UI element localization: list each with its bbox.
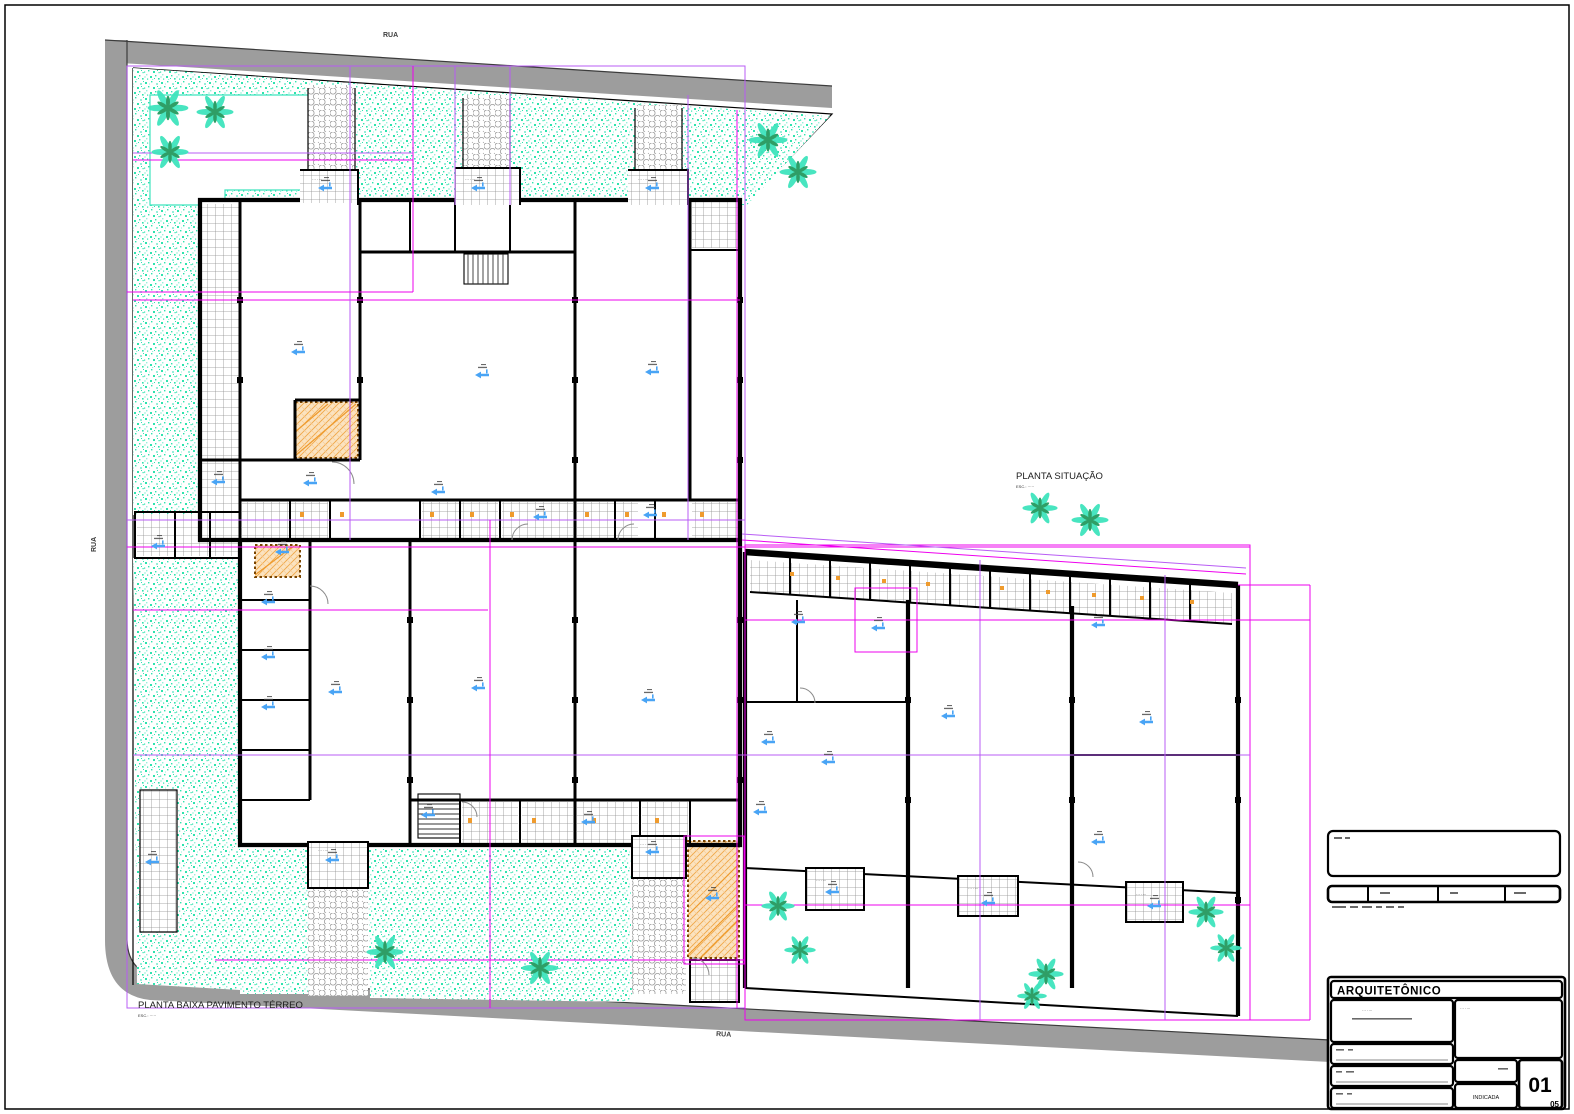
garden-left <box>133 205 202 515</box>
floor-plan-scale: ESC.: ····· <box>138 1013 156 1018</box>
sheet-total: 05 <box>1550 1100 1559 1109</box>
room-label: ··· ···· <box>312 177 322 182</box>
site-plan-building <box>745 552 1238 1016</box>
garden-bottom <box>368 848 632 1002</box>
street-label-left: RUA <box>91 537 98 552</box>
room-label: ··· ···· <box>465 177 475 182</box>
drawing-sheet: ··· ···· ··· ···· ··· ···· ··· ···· ··· … <box>0 0 1574 1114</box>
street-label-bottom: RUA <box>716 1031 731 1039</box>
title-block-field: ··· ···· <box>1362 1008 1372 1013</box>
title-block-scale: INDICADA <box>1473 1095 1500 1101</box>
room-label: ··· ···· <box>638 177 648 182</box>
room-label: ··· ···· <box>1136 892 1146 897</box>
room-label: ··· ···· <box>640 842 650 847</box>
room-label: ··· ···· <box>816 878 826 883</box>
garden-bottom <box>240 848 308 994</box>
site-plan-title: PLANTA SITUAÇÃO <box>1016 471 1103 482</box>
sheet-number: 01 <box>1528 1074 1552 1097</box>
room-label: ··· ···· <box>968 886 978 891</box>
title-block-field: ··· ···· <box>1460 1006 1470 1011</box>
site-plan-scale: ESC.: ····· <box>1016 484 1034 489</box>
room-label: ··· ···· <box>318 848 328 853</box>
architectural-drawing: ··· ···· ··· ···· ··· ···· ··· ···· ··· … <box>0 0 1574 1114</box>
title-block: ARQUITETÔNICO ··· ···· ··· ···· INDICADA… <box>1328 977 1565 1109</box>
street-label-top: RUA <box>383 32 398 39</box>
notes-box <box>1328 831 1560 876</box>
title-block-discipline: ARQUITETÔNICO <box>1337 985 1441 998</box>
floor-plan-title: PLANTA BAIXA PAVIMENTO TÉRREO <box>138 1000 303 1011</box>
